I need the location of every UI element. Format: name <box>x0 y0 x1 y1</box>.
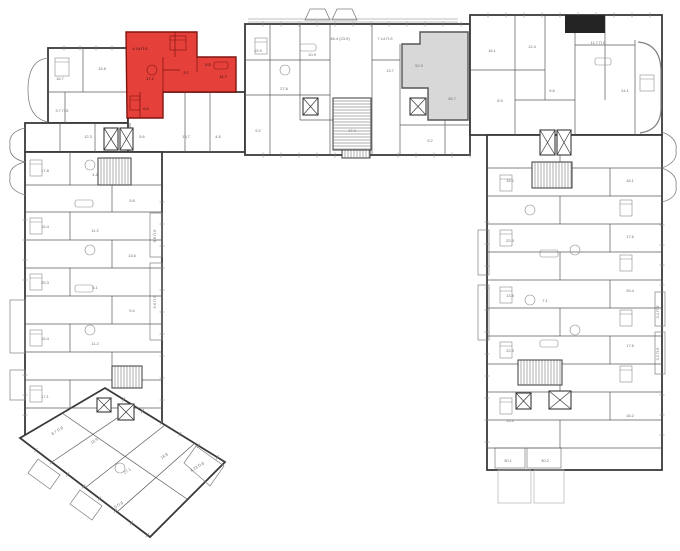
room-area-label: 22.3 <box>506 348 515 353</box>
room-area-label: 9.6 П.б <box>152 229 157 243</box>
room-area-label: 16.7 <box>56 76 65 81</box>
elevator-shaft <box>540 130 555 155</box>
balcony-curve <box>10 128 25 162</box>
room-area-label: 9.2 <box>255 128 261 133</box>
room-area-label: 13.8 <box>506 293 515 298</box>
staircase <box>112 366 142 388</box>
staircase-outline <box>518 360 562 385</box>
room-area-label: 16.2 <box>626 413 635 418</box>
elevator-shaft <box>549 391 571 409</box>
room-area-label: 17.1 <box>41 394 50 399</box>
room-area-label: 13.6 <box>128 253 137 258</box>
floor-plan-drawing: 17.23.75.511.74.14 П.б6.552.936.7 16.715… <box>0 0 680 551</box>
room-area-label: 22.3 <box>506 238 515 243</box>
room-area-label: 16.4 <box>41 224 50 229</box>
unit-area-label: 52.9 <box>415 63 424 68</box>
unit-area-label: 17.2 <box>146 76 155 81</box>
elevator-shaft <box>303 98 318 115</box>
room-area-label: 16.1 <box>626 178 635 183</box>
room-area-label: 3.1 П.б <box>655 305 660 319</box>
unit-area-label: 3.7 <box>183 70 189 75</box>
room-area-label: 9.4 <box>129 308 135 313</box>
building-block <box>25 152 162 435</box>
room-area-label: 17.8 <box>41 168 50 173</box>
room-area-label: 3.2 П.б <box>655 347 660 361</box>
room-area-label: 17.4 <box>348 128 357 133</box>
room-area-label: 25.4 <box>626 288 635 293</box>
room-area-label: 11.2 <box>91 341 99 346</box>
room-area-label: 5.6 <box>549 88 555 93</box>
balcony-curve <box>332 9 357 20</box>
room-area-label: 24.1 <box>621 88 630 93</box>
balcony <box>10 300 25 353</box>
room-area-label: 8.9 <box>497 98 503 103</box>
unit-area-label: 4.14 П.б <box>132 46 148 51</box>
room-area-label: 16.1 <box>488 48 497 53</box>
balcony <box>498 470 531 503</box>
staircase-outline <box>98 158 131 185</box>
room-area-label: 12.3 <box>84 134 93 139</box>
elevator-shaft <box>120 128 133 150</box>
staircase <box>342 150 370 158</box>
unit-area-label: 5.5 <box>205 62 211 67</box>
unit-area-label: 36.7 <box>448 96 457 101</box>
balcony-curve <box>28 58 48 122</box>
room-area-label: 3.8 <box>129 198 135 203</box>
room-area-label: 15.8 <box>98 66 107 71</box>
room-area-label: 17.6 <box>626 234 635 239</box>
building-blocks <box>20 15 662 537</box>
room-area-label: 5.6 <box>139 134 145 139</box>
balcony-curve <box>662 132 676 168</box>
unit-area-label: 6.5 <box>143 106 149 111</box>
unit-area-label: 11.7 <box>219 74 227 79</box>
room-area-label: 10.9 <box>308 52 317 57</box>
room-area-label: 27.6 <box>280 86 289 91</box>
room-area-label: 15.2 <box>506 178 515 183</box>
staircase <box>98 158 131 185</box>
elevator-shaft <box>104 128 118 150</box>
room-area-label: 9.6 П.б <box>152 295 157 309</box>
room-area-label: 30.2 <box>541 458 550 463</box>
elevator-shaft <box>516 393 531 409</box>
room-area-label: 11.2 <box>91 228 99 233</box>
staircase <box>333 98 371 150</box>
staircase <box>518 360 562 385</box>
staircase <box>532 162 572 188</box>
room-area-label: 13.7 <box>182 134 191 139</box>
room-area-label: 15.2 <box>506 418 515 423</box>
room-area-label: 30.1 <box>504 458 513 463</box>
room-area-label: 7.14 П.б <box>377 36 393 41</box>
floor-plan-page: 17.23.75.511.74.14 П.б6.552.936.7 16.715… <box>0 0 680 551</box>
room-area-label: 4.8 <box>215 134 221 139</box>
room-area-label: 25.3 <box>41 280 50 285</box>
balcony-curve <box>10 162 25 195</box>
balcony-curve <box>662 168 676 202</box>
room-area-label: 46.4 (23.9) <box>330 36 350 41</box>
balcony <box>534 470 564 503</box>
room-area-label: 17.6 <box>626 343 635 348</box>
service-shaft-block <box>565 15 605 33</box>
elevator-shaft <box>97 398 111 412</box>
staircase-outline <box>333 98 371 150</box>
room-area-label: 15.9 <box>254 48 263 53</box>
room-area-label: 7.1 <box>542 298 548 303</box>
balcony <box>10 370 25 400</box>
room-area-label: 13.7 <box>386 68 395 73</box>
room-area-label: 9.2 <box>427 138 433 143</box>
elevator-shaft <box>118 404 134 420</box>
room-area-label: 12.4 <box>528 44 537 49</box>
room-area-label: 11.7 П.б <box>591 40 607 45</box>
room-area-label: 16.4 <box>41 336 50 341</box>
elevator-shaft <box>557 130 571 155</box>
room-area-label: 4.2 <box>92 172 98 177</box>
balcony-curve <box>305 9 330 20</box>
elevator-shaft <box>410 98 426 115</box>
room-area-label: 9.7 П.б <box>56 108 70 113</box>
room-area-label: 5.1 <box>92 285 98 290</box>
